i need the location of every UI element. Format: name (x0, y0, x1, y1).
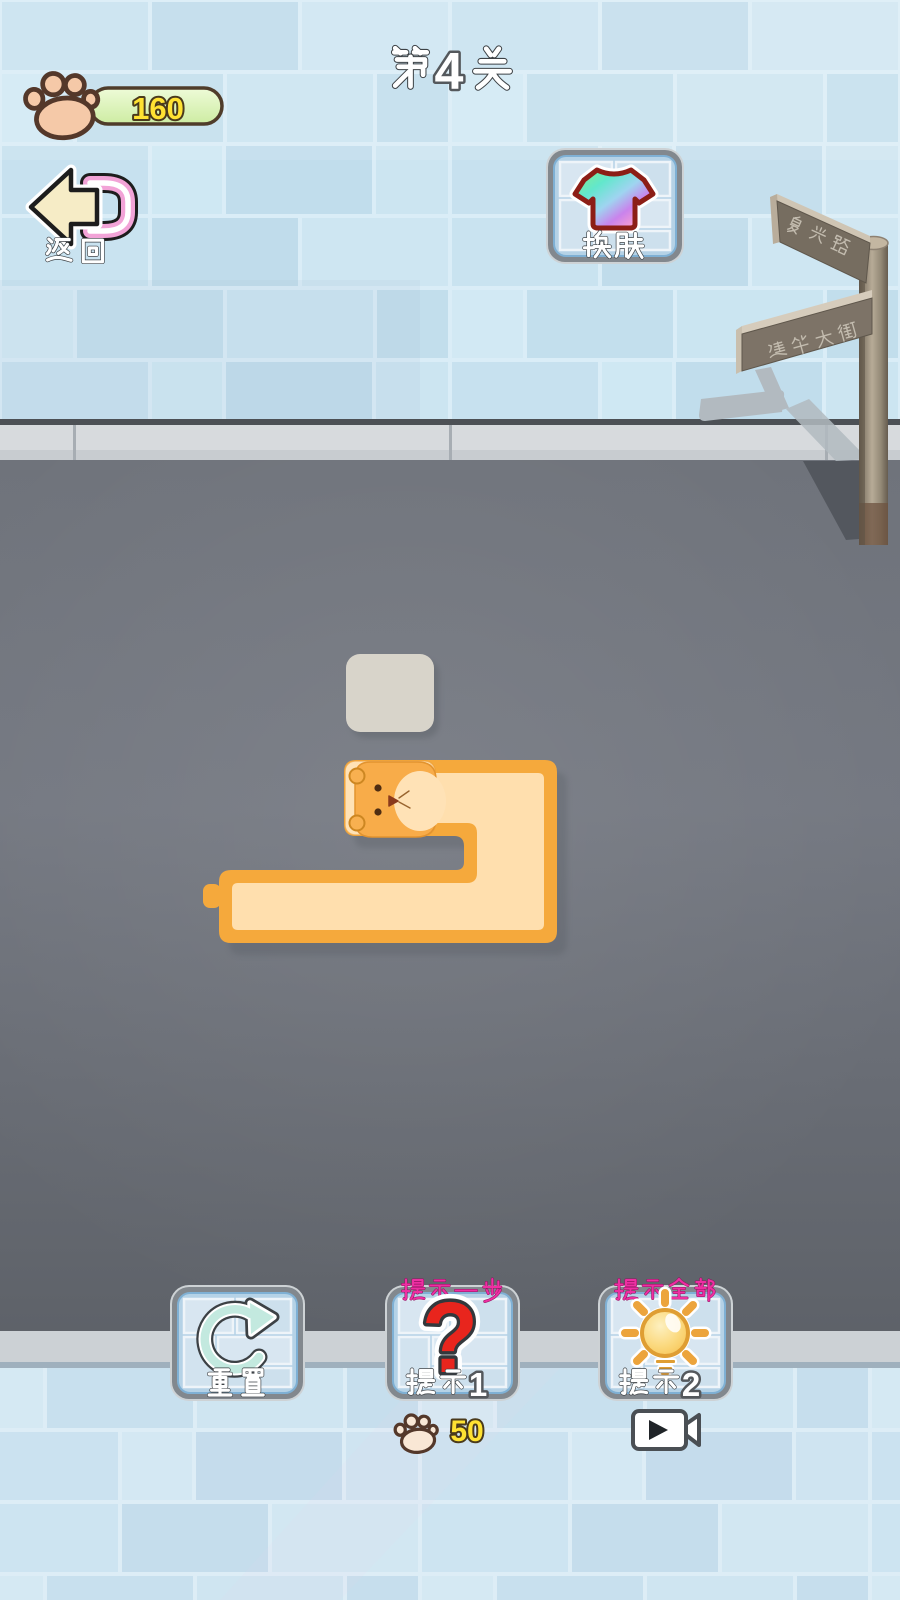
svg-text:1: 1 (469, 1366, 487, 1403)
svg-text:2: 2 (682, 1366, 700, 1403)
svg-text:4: 4 (435, 43, 464, 101)
svg-text:50: 50 (450, 1415, 483, 1448)
svg-text:160: 160 (132, 91, 184, 126)
